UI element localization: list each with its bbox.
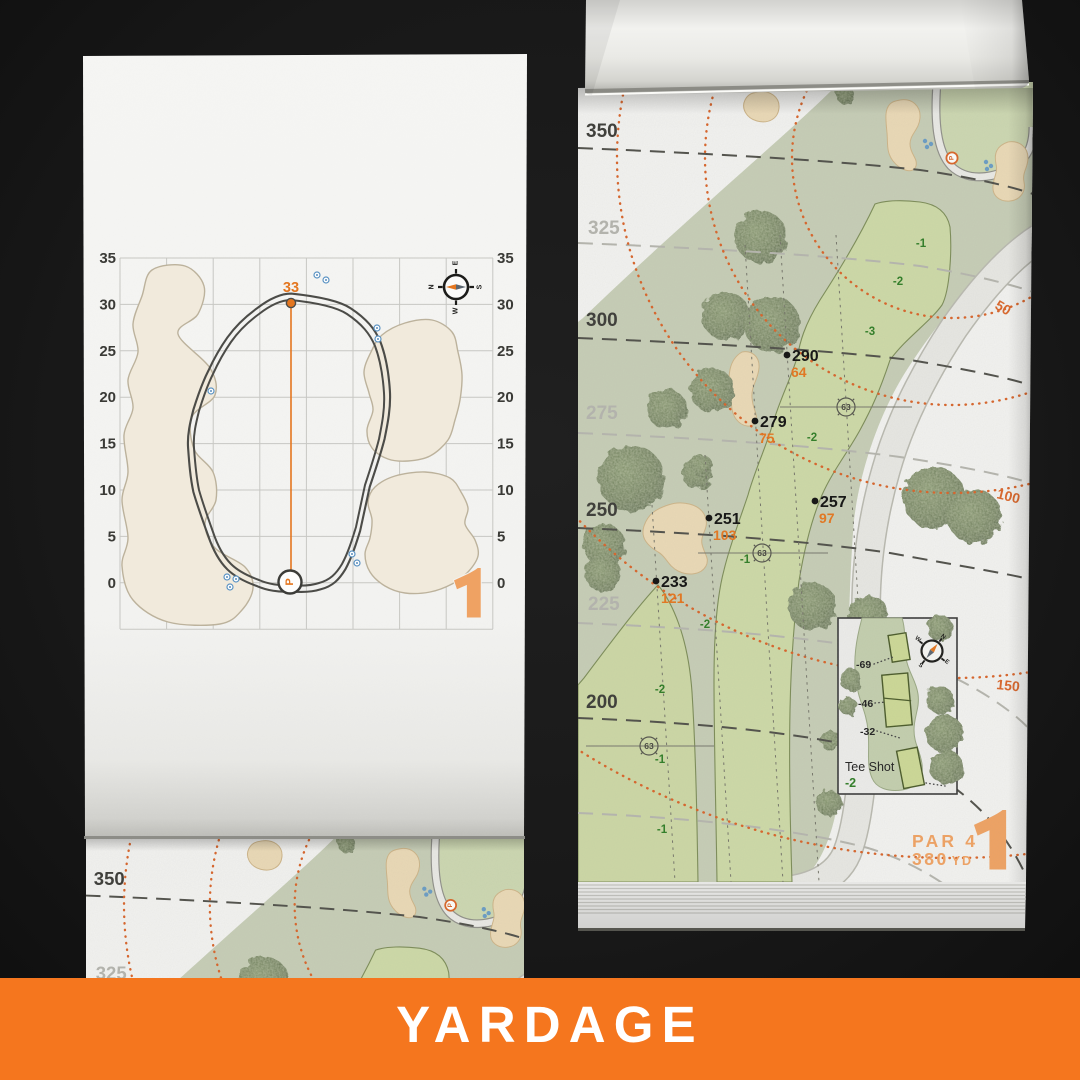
svg-text:15: 15 <box>497 436 514 453</box>
svg-text:33: 33 <box>283 280 299 296</box>
svg-text:25: 25 <box>497 343 514 360</box>
svg-text:35: 35 <box>497 250 514 267</box>
svg-text:30: 30 <box>99 296 116 313</box>
svg-text:W: W <box>453 307 460 314</box>
svg-text:10: 10 <box>99 482 116 499</box>
svg-text:0: 0 <box>108 575 116 592</box>
svg-text:N: N <box>429 284 436 289</box>
svg-text:P: P <box>284 578 296 585</box>
svg-text:30: 30 <box>497 296 514 313</box>
svg-text:5: 5 <box>497 528 505 545</box>
svg-text:5: 5 <box>108 528 116 545</box>
svg-text:35: 35 <box>99 250 116 267</box>
svg-text:20: 20 <box>99 389 116 406</box>
svg-text:15: 15 <box>99 436 116 453</box>
svg-text:10: 10 <box>497 482 514 499</box>
svg-text:S: S <box>477 284 484 289</box>
svg-text:25: 25 <box>99 343 116 360</box>
svg-text:20: 20 <box>497 389 514 406</box>
svg-text:0: 0 <box>497 575 505 592</box>
svg-text:E: E <box>453 260 460 265</box>
svg-text:YARDAGE: YARDAGE <box>396 996 704 1053</box>
